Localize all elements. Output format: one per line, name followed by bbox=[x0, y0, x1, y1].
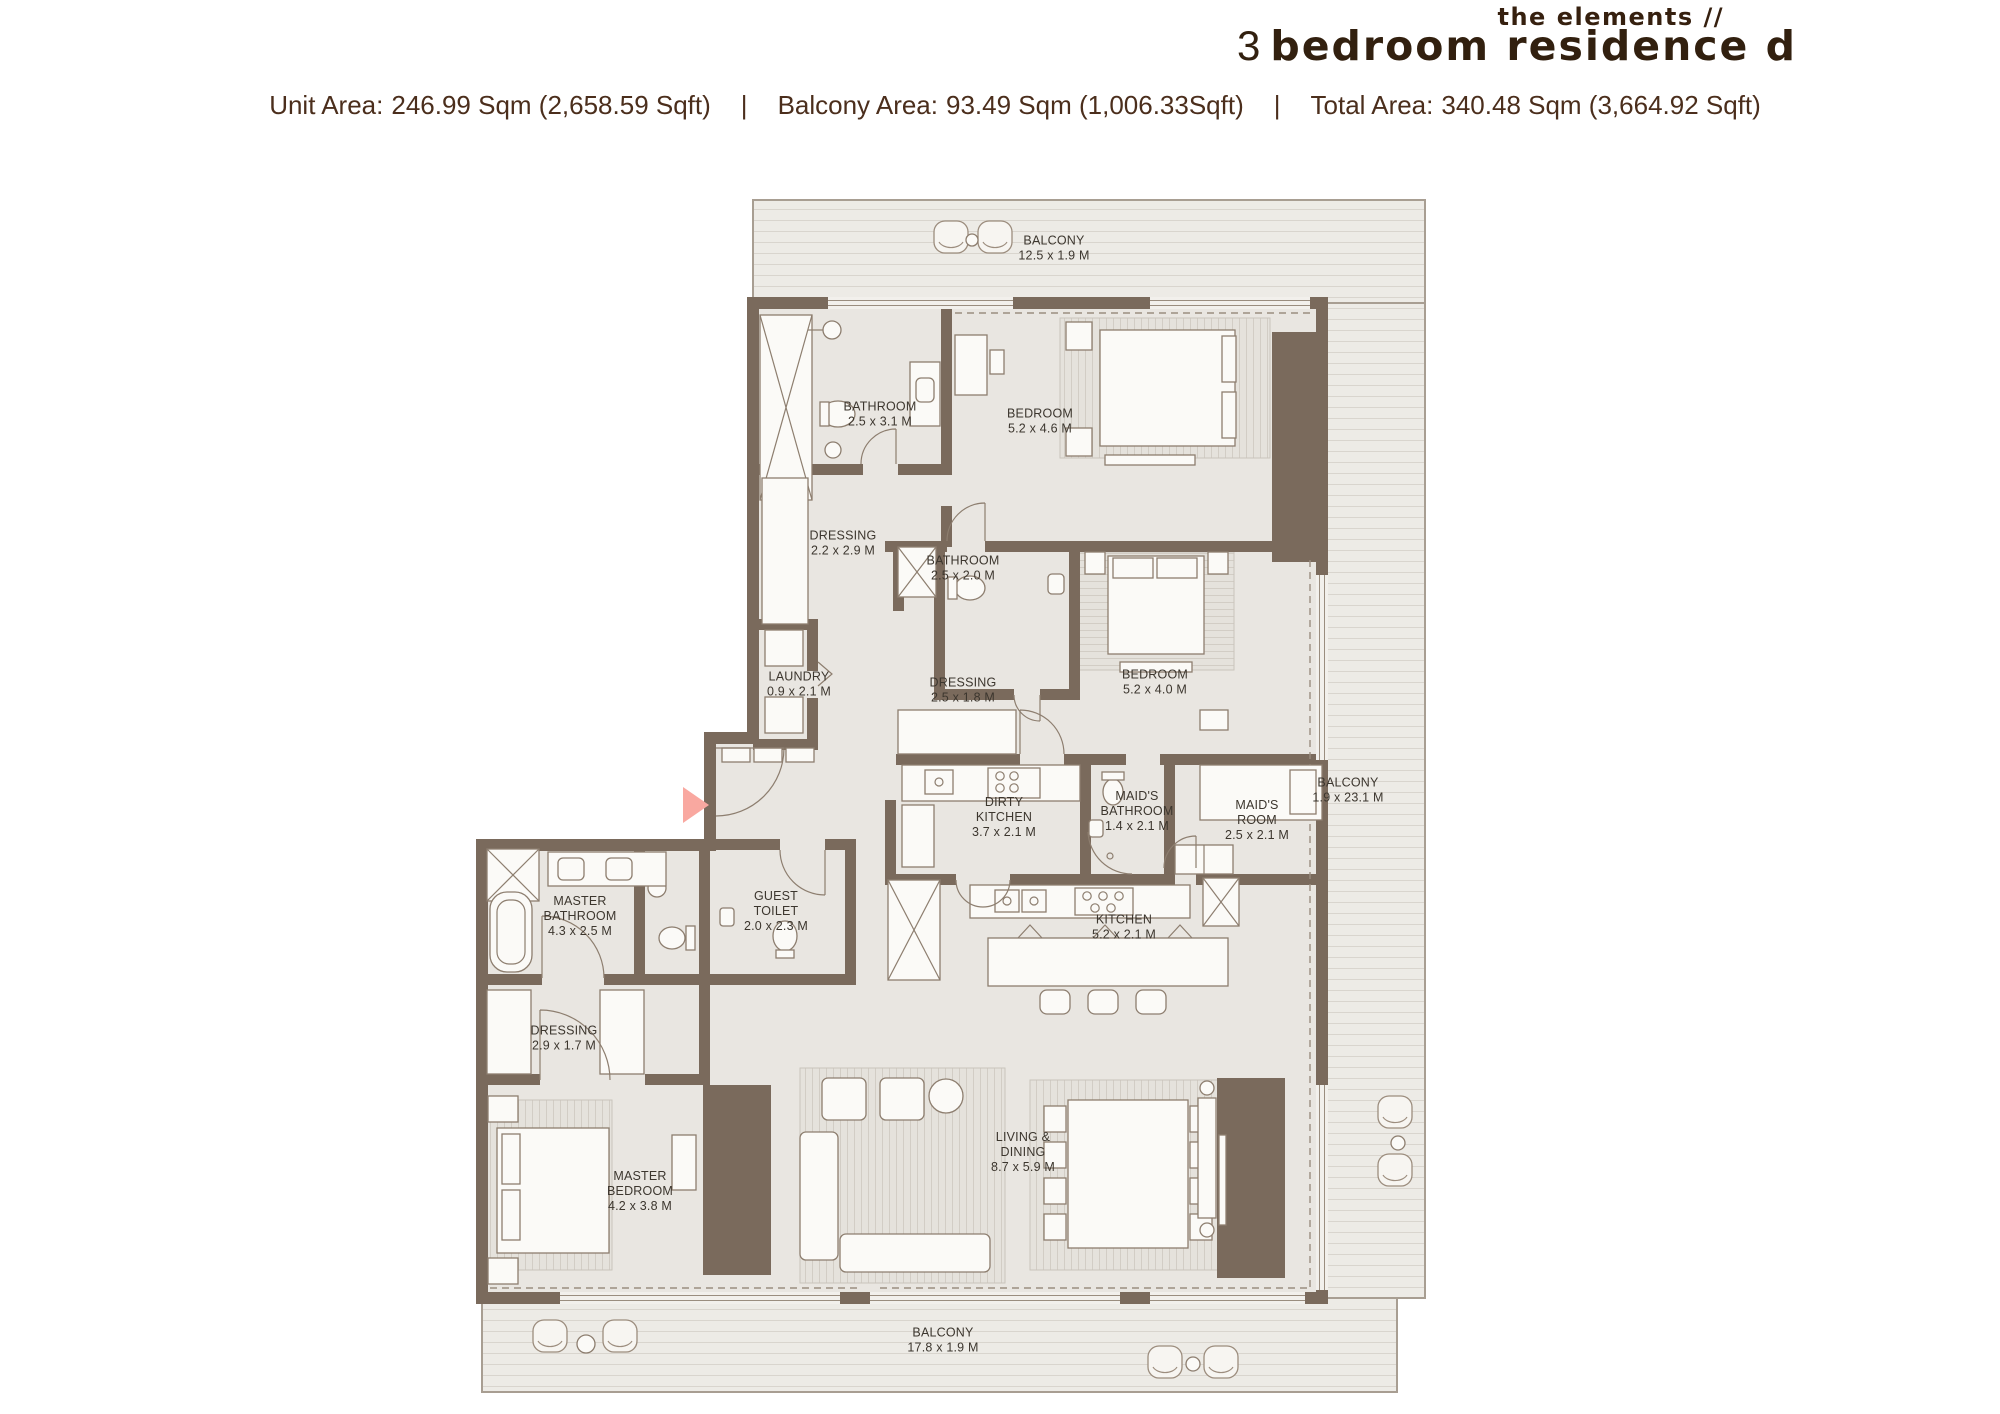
floor-plan: BALCONY12.5 x 1.9 MBATHROOM2.5 x 3.1 MBE… bbox=[0, 0, 2000, 1414]
room-label-dirty-kitchen: DIRTY KITCHEN3.7 x 2.1 M bbox=[972, 795, 1036, 839]
room-label-dressing-2: DRESSING2.5 x 1.8 M bbox=[930, 675, 997, 705]
room-label-kitchen: KITCHEN5.2 x 2.1 M bbox=[1092, 912, 1156, 942]
room-label-living-dining: LIVING & DINING8.7 x 5.9 M bbox=[991, 1130, 1055, 1174]
room-label-balcony-top: BALCONY12.5 x 1.9 M bbox=[1018, 233, 1089, 263]
room-label-balcony-right: BALCONY1.9 x 23.1 M bbox=[1312, 775, 1383, 805]
room-label-balcony-bottom: BALCONY17.8 x 1.9 M bbox=[907, 1325, 978, 1355]
room-label-master-bedroom: MASTER BEDROOM4.2 x 3.8 M bbox=[607, 1169, 673, 1213]
room-label-master-bathroom: MASTER BATHROOM4.3 x 2.5 M bbox=[544, 894, 617, 938]
room-label-dressing-1: DRESSING2.2 x 2.9 M bbox=[810, 528, 877, 558]
floorplan-page: the elements // 3bedroom residence d Uni… bbox=[0, 0, 2000, 1414]
room-label-bathroom-2: BATHROOM2.5 x 2.0 M bbox=[927, 553, 1000, 583]
room-label-maids-bathroom: MAID'S BATHROOM1.4 x 2.1 M bbox=[1101, 789, 1174, 833]
room-label-guest-toilet: GUEST TOILET2.0 x 2.3 M bbox=[744, 889, 808, 933]
room-label-laundry: LAUNDRY0.9 x 2.1 M bbox=[767, 669, 831, 699]
room-label-bedroom-2: BEDROOM5.2 x 4.0 M bbox=[1122, 667, 1188, 697]
room-label-bedroom-1: BEDROOM5.2 x 4.6 M bbox=[1007, 406, 1073, 436]
floorplan-svg bbox=[0, 0, 2000, 1414]
room-label-maids-room: MAID'S ROOM2.5 x 2.1 M bbox=[1225, 798, 1289, 842]
room-label-bathroom-1: BATHROOM2.5 x 3.1 M bbox=[844, 399, 917, 429]
room-label-dressing-3: DRESSING2.9 x 1.7 M bbox=[531, 1023, 598, 1053]
